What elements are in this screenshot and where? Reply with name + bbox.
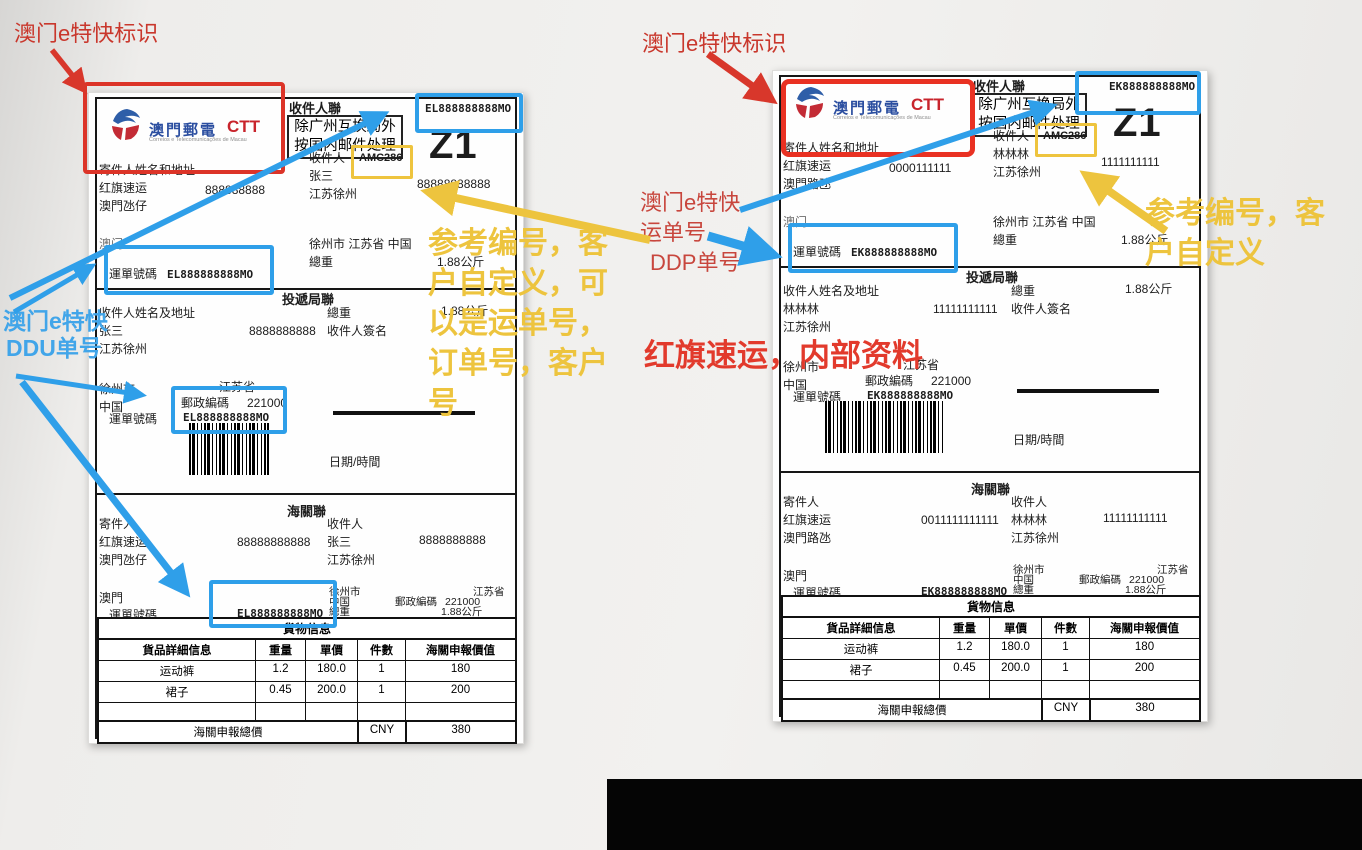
- ddp-note-line2: 运单号: [640, 218, 740, 248]
- destination-line: 徐州市 江苏省 中国: [993, 215, 1096, 229]
- highlight-waybill-copy1: [104, 245, 274, 295]
- copy3-sender-address: 澳門路氹: [783, 531, 831, 545]
- reference-note-line: 以是运单号，: [428, 304, 608, 344]
- highlight-reference-code: [1035, 123, 1097, 157]
- recipient-name: 张三: [309, 169, 333, 183]
- reference-note-right: 参考编号，客 户自定义: [1145, 194, 1325, 274]
- reference-note-line: 户自定义: [1145, 234, 1325, 274]
- sender-address: 澳門路氹: [783, 177, 831, 191]
- goods-cell: 裙子: [99, 681, 255, 702]
- highlight-tracking-top: [415, 93, 523, 133]
- goods-header-cell: 件數: [357, 640, 405, 660]
- copy2-recipient-phone: 11111111111: [933, 302, 998, 316]
- highlight-waybill-copy3: [209, 580, 337, 628]
- copy2-recipient-block-label: 收件人姓名及地址: [783, 284, 879, 298]
- reference-note-center: 参考编号，客 户自定义，可 以是运单号， 订单号，客户 号: [428, 224, 608, 424]
- goods-cell: 1: [357, 681, 405, 702]
- goods-cell: 200: [1089, 659, 1199, 680]
- highlight-logo-left: [83, 82, 285, 174]
- goods-table: 貨物信息 貨品詳細信息 重量 單價 件數 海關申報價值 运动裤 1.2 180.…: [97, 617, 517, 744]
- sender-phone: 888888888: [205, 183, 265, 197]
- highlight-tracking-top: [1075, 71, 1201, 115]
- goods-table-title: 貨物信息: [783, 597, 1199, 618]
- copy3-title: 海關聯: [287, 504, 326, 520]
- goods-cell: 200: [405, 681, 515, 702]
- copy2-weight-label: 總重: [327, 306, 351, 320]
- copy3-postcode-label: 郵政編碼: [1079, 575, 1121, 586]
- highlight-postcode-copy2: [171, 386, 287, 434]
- copy2-recipient-phone: 8888888888: [249, 324, 316, 338]
- copy2-recipient-block-label: 收件人姓名及地址: [99, 306, 195, 320]
- goods-cell: 180: [1089, 638, 1199, 659]
- copy3-recipient-phone: 8888888888: [419, 533, 486, 547]
- arrow-ddu-to-waybill-copy1: [14, 266, 92, 312]
- copy3-recipient-name: 张三: [327, 535, 351, 549]
- goods-header-cell: 單價: [305, 640, 357, 660]
- ddp-note-line1: 澳门e特快: [640, 188, 740, 218]
- ddp-note-line3: DDP单号: [650, 248, 740, 278]
- logo-note-left: 澳门e特快标识: [14, 16, 158, 48]
- goods-cell: 裙子: [783, 659, 939, 680]
- goods-header-cell: 重量: [255, 640, 305, 660]
- copy3-recipient-phone: 11111111111: [1103, 511, 1168, 525]
- goods-header-cell: 件數: [1041, 618, 1089, 638]
- reference-note-line: 户自定义，可: [428, 264, 608, 304]
- goods-total-value: 380: [405, 722, 515, 742]
- recipient-phone: 1111111111: [1101, 155, 1160, 169]
- destination-line: 徐州市 江苏省 中国: [309, 237, 412, 251]
- goods-cell: 0.45: [255, 681, 305, 702]
- highlight-waybill-copy1: [788, 223, 958, 273]
- goods-currency: CNY: [1041, 700, 1089, 720]
- copy2-recipient-name: 林林林: [783, 302, 819, 316]
- goods-cell: 1: [1041, 659, 1089, 680]
- goods-total-row: 海關申報總價 CNY 380: [783, 698, 1199, 720]
- reference-note-line: 订单号，客户: [428, 344, 608, 384]
- weight-label: 總重: [309, 255, 333, 269]
- goods-cell: 200.0: [989, 659, 1041, 680]
- sender-address: 澳門氹仔: [99, 199, 147, 213]
- goods-cell: 0.45: [939, 659, 989, 680]
- goods-cell: 1: [357, 660, 405, 681]
- weight-label: 總重: [993, 233, 1017, 247]
- copy3-recipient-header: 收件人: [327, 517, 363, 531]
- copy2-waybill-label: 運單號碼: [109, 412, 157, 426]
- arrow-logo-note-left: [52, 50, 84, 90]
- logo-note-right: 澳门e特快标识: [642, 26, 786, 58]
- copy2-postcode: 221000: [931, 374, 971, 388]
- goods-cell: 运动裤: [99, 660, 255, 681]
- goods-header-cell: 海關申報價值: [405, 640, 515, 660]
- copy3-recipient-name: 林林林: [1011, 513, 1047, 527]
- copy3-postcode-label: 郵政編碼: [395, 597, 437, 608]
- copy3-sender-phone: 88888888888: [237, 535, 310, 549]
- goods-cell: 180: [405, 660, 515, 681]
- goods-header-cell: 貨品詳細信息: [783, 618, 939, 638]
- recipient-phone: 88888888888: [417, 177, 490, 191]
- goods-total-label: 海關申報總價: [783, 700, 1041, 720]
- goods-total-row: 海關申報總價 CNY 380: [99, 720, 515, 742]
- goods-cell: 1: [1041, 638, 1089, 659]
- signature-label: 收件人簽名: [1011, 302, 1071, 316]
- goods-empty-row: [783, 680, 1199, 698]
- redacted-black-bar: [607, 779, 1362, 850]
- copy3-recipient-address: 江苏徐州: [1011, 531, 1059, 545]
- ddu-note: 澳门e特快 DDU单号: [3, 308, 108, 362]
- ddu-note-line1: 澳门e特快: [3, 308, 108, 335]
- recipient-name: 林林林: [993, 147, 1029, 161]
- recipient-label: 收件人: [309, 151, 345, 165]
- goods-cell: 200.0: [305, 681, 357, 702]
- copy2-postcode-label: 郵政編碼: [865, 374, 913, 388]
- goods-header-row: 貨品詳細信息 重量 單價 件數 海關申報價值: [783, 618, 1199, 638]
- highlight-reference-code: [351, 145, 413, 179]
- ddp-note: 澳门e特快 运单号 DDP单号: [640, 188, 740, 278]
- highlight-logo-right: [781, 79, 975, 157]
- copy3-province: 江苏省: [1157, 565, 1189, 576]
- goods-row: 裙子 0.45 200.0 1 200: [99, 681, 515, 702]
- copy3-province: 江苏省: [473, 587, 505, 598]
- ddu-note-line2: DDU单号: [6, 335, 108, 362]
- datetime-label: 日期/時間: [1013, 433, 1064, 447]
- recipient-address: 江苏徐州: [993, 165, 1041, 179]
- copy3-sender-header: 寄件人: [99, 517, 135, 531]
- recipient-label: 收件人: [993, 129, 1029, 143]
- datetime-label: 日期/時間: [329, 455, 380, 469]
- reference-note-line: 号: [428, 384, 608, 424]
- copy3-recipient-address: 江苏徐州: [327, 553, 375, 567]
- goods-total-label: 海關申報總價: [99, 722, 357, 742]
- copy3-title: 海關聯: [971, 482, 1010, 498]
- goods-total-value: 380: [1089, 700, 1199, 720]
- copy2-weight-label: 總重: [1011, 284, 1035, 298]
- copy3-sender-name: 红旗速运: [99, 535, 147, 549]
- sender-name: 红旗速运: [99, 181, 147, 195]
- goods-cell: 1.2: [255, 660, 305, 681]
- signature-label: 收件人簽名: [327, 324, 387, 338]
- goods-row: 运动裤 1.2 180.0 1 180: [783, 638, 1199, 659]
- goods-currency: CNY: [357, 722, 405, 742]
- reference-note-line: 参考编号，客: [428, 224, 608, 264]
- goods-cell: 180.0: [305, 660, 357, 681]
- goods-empty-row: [99, 702, 515, 720]
- goods-cell: 180.0: [989, 638, 1041, 659]
- copy3-sender-address: 澳門氹仔: [99, 553, 147, 567]
- copy2-weight-value: 1.88公斤: [1125, 282, 1172, 296]
- section-divider: [781, 471, 1199, 473]
- sender-phone: 0000111111: [889, 161, 951, 175]
- routing-notice-line1: 除广州互换局外: [975, 96, 1083, 115]
- recipient-address: 江苏徐州: [309, 187, 357, 201]
- goods-header-cell: 海關申報價值: [1089, 618, 1199, 638]
- goods-table: 貨物信息 貨品詳細信息 重量 單價 件數 海關申報價值 运动裤 1.2 180.…: [781, 595, 1201, 722]
- goods-cell: 运动裤: [783, 638, 939, 659]
- section-divider: [97, 493, 515, 495]
- shipping-label-ddp: 澳門郵電 CTT Correios e Telecomunicações de …: [772, 70, 1208, 722]
- barcode: [825, 401, 943, 453]
- goods-header-cell: 重量: [939, 618, 989, 638]
- arrow-logo-note-right: [708, 54, 772, 100]
- goods-cell: 1.2: [939, 638, 989, 659]
- sender-name: 红旗速运: [783, 159, 831, 173]
- copy3-sender-phone: 0011111111111: [921, 513, 999, 527]
- internal-note: 红旗速运，内部资料: [644, 330, 923, 375]
- signature-line: [1017, 389, 1159, 393]
- goods-row: 运动裤 1.2 180.0 1 180: [99, 660, 515, 681]
- goods-header-row: 貨品詳細信息 重量 單價 件數 海關申報價值: [99, 640, 515, 660]
- copy3-recipient-header: 收件人: [1011, 495, 1047, 509]
- goods-row: 裙子 0.45 200.0 1 200: [783, 659, 1199, 680]
- goods-header-cell: 單價: [989, 618, 1041, 638]
- goods-header-cell: 貨品詳細信息: [99, 640, 255, 660]
- copy3-origin: 澳門: [99, 591, 123, 605]
- copy3-sender-name: 红旗速运: [783, 513, 831, 527]
- copy3-origin: 澳門: [783, 569, 807, 583]
- reference-note-line: 参考编号，客: [1145, 194, 1325, 234]
- routing-notice-line1: 除广州互换局外: [291, 118, 399, 137]
- copy2-city: 徐州市: [99, 382, 135, 396]
- copy3-sender-header: 寄件人: [783, 495, 819, 509]
